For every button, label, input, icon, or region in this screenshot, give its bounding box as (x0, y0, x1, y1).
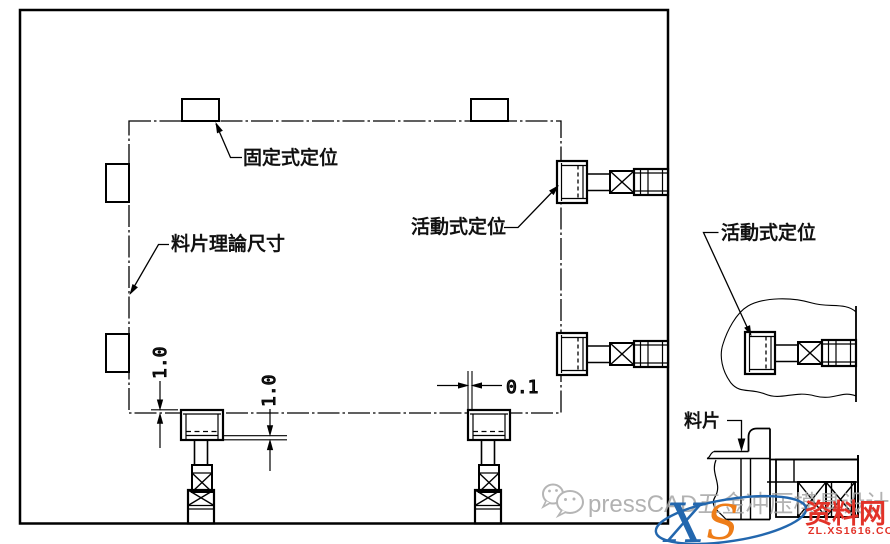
dimension-side-gap: 0.1 (437, 371, 539, 409)
movable-locator-detail (745, 332, 856, 374)
movable-locator-bottom-left (181, 410, 223, 524)
dimension-tab-offset: 1.0 (150, 346, 178, 448)
fixed-tab-left-upper (106, 164, 129, 202)
movable-locator-label: 活動式定位 (411, 215, 506, 238)
strip-label: 料片 (684, 410, 720, 431)
movable-locator-right-upper (557, 161, 668, 203)
fixed-locator-callout: 固定式定位 (213, 121, 338, 169)
wechat-bubble-large-icon (557, 491, 583, 513)
locator-pin-section (749, 429, 771, 452)
dimension-tab-offset-text: 1.0 (150, 346, 171, 379)
dimension-slot-clearance-text: 1.0 (259, 374, 280, 407)
movable-locator-bottom-right (468, 410, 510, 524)
fixed-locator-label: 固定式定位 (243, 146, 338, 169)
dimension-side-gap-text: 0.1 (506, 377, 539, 398)
movable-locator-detail-label: 活動式定位 (721, 221, 816, 244)
fixed-tab-top-right (471, 99, 508, 121)
movable-locator-right-lower (557, 333, 668, 375)
fixed-tab-top-left (182, 99, 219, 121)
sheet-theoretical-outline (129, 121, 561, 413)
sheet-size-callout: 料片理論尺寸 (127, 232, 285, 297)
site-url-text: ZL.XS1616.COM (808, 525, 890, 537)
die-outer-border (20, 10, 668, 524)
site-logo-s: S (706, 495, 739, 544)
cad-drawing: 固定式定位 料片理論尺寸 活動式定位 1.0 1.0 (0, 0, 890, 544)
dimension-slot-clearance: 1.0 (223, 374, 287, 471)
fixed-tab-left-lower (106, 334, 129, 372)
site-logo-x: X (662, 492, 707, 544)
movable-locator-callout: 活動式定位 (411, 183, 561, 238)
detail-view: 活動式定位 (704, 221, 857, 402)
cad-drawing-canvas: 固定式定位 料片理論尺寸 活動式定位 1.0 1.0 (0, 0, 890, 544)
sheet-size-label: 料片理論尺寸 (171, 232, 285, 255)
